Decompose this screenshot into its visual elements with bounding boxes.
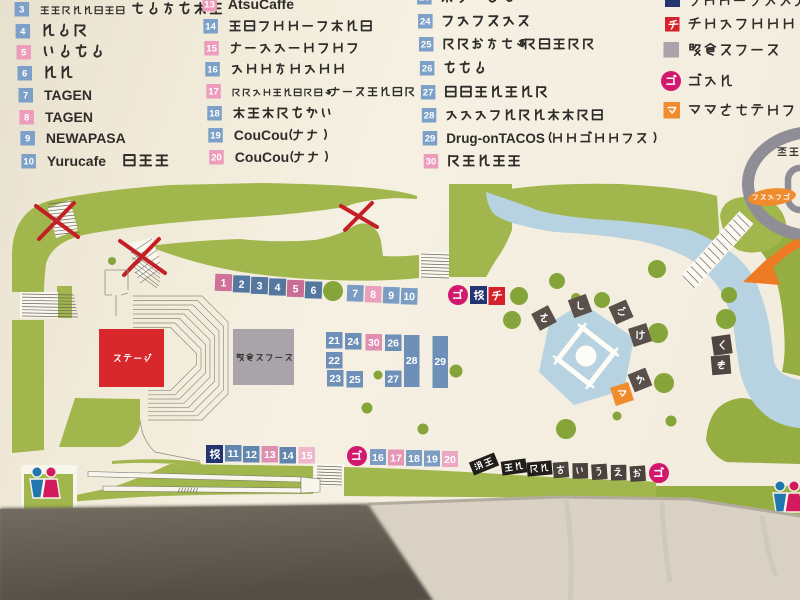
svg-text:16: 16	[207, 65, 218, 76]
svg-text:4: 4	[274, 282, 280, 294]
svg-text:TAGEN: TAGEN	[45, 109, 93, 125]
svg-text:3: 3	[19, 5, 24, 16]
svg-text:5: 5	[292, 283, 298, 295]
svg-text:14: 14	[205, 22, 216, 33]
svg-text:20: 20	[444, 454, 456, 466]
svg-text:8: 8	[370, 289, 376, 301]
svg-text:3: 3	[256, 280, 262, 292]
svg-text:AtsuCaffe: AtsuCaffe	[228, 0, 294, 12]
svg-text:16: 16	[372, 452, 384, 464]
svg-text:27: 27	[423, 88, 434, 99]
svg-text:5: 5	[21, 48, 27, 59]
svg-text:NEWAPASA: NEWAPASA	[46, 130, 126, 146]
svg-text:6: 6	[310, 285, 316, 297]
svg-text:6: 6	[22, 69, 27, 80]
svg-text:28: 28	[424, 111, 435, 122]
svg-text:17: 17	[208, 87, 219, 98]
svg-text:12: 12	[245, 449, 257, 461]
svg-text:Yurucafe: Yurucafe	[47, 153, 106, 169]
svg-text:30: 30	[368, 337, 380, 349]
svg-text:29: 29	[425, 134, 436, 145]
svg-text:7: 7	[23, 91, 28, 102]
svg-text:27: 27	[387, 374, 399, 386]
svg-text:7: 7	[352, 288, 358, 300]
svg-text:26: 26	[387, 338, 399, 350]
svg-text:24: 24	[420, 17, 431, 28]
svg-text:23: 23	[419, 0, 430, 4]
svg-text:15: 15	[206, 44, 217, 55]
svg-text:20: 20	[211, 153, 222, 164]
svg-text:25: 25	[349, 374, 361, 386]
svg-text:TAGEN: TAGEN	[44, 87, 92, 103]
svg-text:10: 10	[23, 157, 34, 168]
svg-text:29: 29	[434, 356, 446, 368]
svg-text:10: 10	[403, 291, 415, 303]
svg-text:30: 30	[426, 157, 437, 168]
svg-text:9: 9	[25, 134, 30, 145]
svg-text:CouCou: CouCou	[234, 127, 288, 143]
svg-text:17: 17	[390, 452, 402, 464]
svg-text:13: 13	[204, 0, 215, 11]
svg-text:CouCou: CouCou	[235, 149, 289, 165]
svg-text:11: 11	[228, 448, 239, 460]
svg-text:13: 13	[264, 449, 276, 461]
svg-text:1: 1	[220, 277, 226, 289]
svg-text:15: 15	[301, 450, 313, 462]
svg-text:23: 23	[329, 373, 341, 385]
svg-text:8: 8	[24, 113, 29, 124]
svg-text:19: 19	[426, 453, 438, 465]
svg-text:14: 14	[282, 450, 294, 462]
svg-text:21: 21	[328, 335, 340, 347]
svg-text:28: 28	[406, 355, 418, 367]
svg-text:26: 26	[422, 64, 433, 75]
svg-text:Drug-onTACOS: Drug-onTACOS	[446, 131, 545, 146]
svg-text:19: 19	[210, 131, 221, 142]
svg-text:2: 2	[238, 279, 244, 291]
svg-text:9: 9	[388, 290, 394, 302]
svg-text:18: 18	[209, 109, 220, 120]
svg-text:24: 24	[347, 336, 359, 348]
svg-text:4: 4	[20, 27, 26, 38]
svg-text:18: 18	[408, 453, 420, 465]
svg-text:22: 22	[328, 355, 340, 367]
svg-text:25: 25	[421, 40, 432, 51]
